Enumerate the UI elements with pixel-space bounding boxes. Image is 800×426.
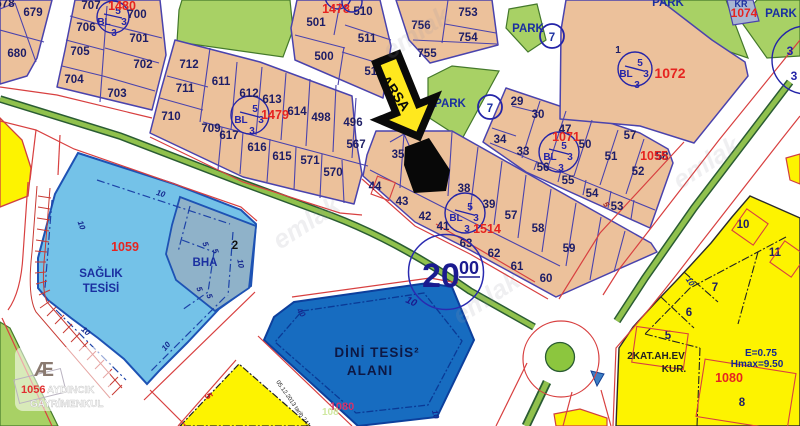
- svg-text:702: 702: [133, 59, 152, 71]
- svg-text:5: 5: [467, 202, 473, 213]
- svg-text:496: 496: [343, 117, 362, 129]
- svg-text:35: 35: [392, 149, 405, 161]
- svg-text:3: 3: [558, 163, 564, 174]
- svg-text:ALANI: ALANI: [347, 363, 393, 378]
- svg-text:498: 498: [311, 112, 331, 124]
- svg-text:1071: 1071: [552, 130, 580, 144]
- svg-text:709: 709: [201, 123, 220, 135]
- svg-text:41: 41: [437, 221, 450, 233]
- svg-text:60: 60: [540, 273, 553, 285]
- svg-text:1080: 1080: [715, 371, 743, 385]
- svg-text:704: 704: [64, 74, 84, 86]
- svg-text:54: 54: [586, 188, 599, 200]
- svg-text:BL: BL: [449, 213, 462, 224]
- svg-text:56: 56: [537, 162, 550, 174]
- svg-text:DİNİ TESİS²: DİNİ TESİS²: [334, 345, 419, 360]
- svg-text:43: 43: [396, 196, 409, 208]
- svg-text:570: 570: [323, 167, 342, 179]
- svg-text:1480: 1480: [108, 0, 136, 13]
- svg-text:1479: 1479: [261, 108, 289, 122]
- svg-text:20: 20: [422, 257, 460, 295]
- svg-text:1055: 1055: [640, 149, 668, 163]
- svg-text:BL: BL: [97, 17, 110, 28]
- svg-text:679: 679: [23, 7, 42, 19]
- svg-text:38: 38: [458, 183, 471, 195]
- svg-text:501: 501: [306, 17, 326, 29]
- svg-text:50: 50: [579, 139, 592, 151]
- svg-text:Hmax=9.50: Hmax=9.50: [731, 359, 784, 370]
- svg-text:3: 3: [567, 152, 573, 163]
- svg-text:3: 3: [464, 224, 470, 235]
- svg-text:617: 617: [219, 130, 238, 142]
- svg-text:510: 510: [353, 6, 372, 18]
- svg-text:3: 3: [791, 69, 798, 83]
- svg-text:39: 39: [483, 199, 496, 211]
- svg-text:AYDINCIK: AYDINCIK: [47, 385, 95, 396]
- svg-text:GAYRİMENKUL: GAYRİMENKUL: [30, 397, 104, 410]
- svg-text:703: 703: [107, 88, 126, 100]
- svg-text:55: 55: [562, 175, 575, 187]
- svg-text:3: 3: [787, 44, 794, 58]
- svg-text:33: 33: [517, 146, 530, 158]
- svg-text:29: 29: [511, 96, 524, 108]
- svg-text:705: 705: [70, 46, 90, 58]
- svg-text:1072: 1072: [654, 65, 685, 81]
- svg-text:BL: BL: [234, 115, 247, 126]
- svg-text:612: 612: [239, 88, 258, 100]
- svg-text:711: 711: [176, 83, 195, 95]
- svg-text:30: 30: [532, 109, 545, 121]
- svg-text:613: 613: [262, 94, 281, 106]
- svg-text:1: 1: [615, 45, 621, 56]
- svg-text:SAĞLIK: SAĞLIK: [79, 267, 123, 280]
- svg-text:TESİSİ: TESİSİ: [83, 282, 119, 295]
- svg-text:58: 58: [532, 223, 545, 235]
- svg-text:567: 567: [346, 139, 365, 151]
- svg-text:PARK: PARK: [434, 98, 466, 110]
- svg-text:500: 500: [314, 51, 333, 63]
- svg-text:57: 57: [505, 210, 518, 222]
- svg-text:1056: 1056: [21, 384, 45, 396]
- svg-text:57: 57: [624, 130, 637, 142]
- svg-text:3: 3: [249, 126, 255, 137]
- svg-text:108: 108: [322, 407, 339, 418]
- svg-text:754: 754: [458, 32, 478, 44]
- svg-text:3: 3: [111, 28, 117, 39]
- svg-text:3: 3: [121, 17, 127, 28]
- svg-text:59: 59: [563, 243, 576, 255]
- svg-text:5: 5: [252, 104, 258, 115]
- svg-text:7: 7: [712, 282, 718, 294]
- svg-text:53: 53: [611, 201, 624, 213]
- svg-text:3: 3: [634, 80, 640, 91]
- svg-text:8: 8: [739, 397, 746, 409]
- svg-text:52: 52: [632, 166, 645, 178]
- svg-text:BHA: BHA: [193, 257, 218, 269]
- svg-text:707: 707: [81, 0, 100, 12]
- svg-text:680: 680: [7, 48, 26, 60]
- svg-text:Æ: Æ: [34, 359, 54, 381]
- svg-text:571: 571: [300, 155, 320, 167]
- svg-text:710: 710: [161, 111, 180, 123]
- svg-text:1514: 1514: [473, 222, 501, 236]
- svg-text:6: 6: [686, 307, 692, 319]
- svg-text:1059: 1059: [111, 240, 139, 254]
- svg-text:PARK: PARK: [765, 8, 797, 20]
- svg-text:755: 755: [417, 48, 437, 60]
- svg-text:701: 701: [129, 33, 149, 45]
- svg-text:KUR.: KUR.: [662, 364, 687, 375]
- svg-text:678: 678: [0, 0, 15, 10]
- svg-text:7: 7: [487, 103, 493, 115]
- svg-text:611: 611: [212, 76, 231, 88]
- svg-text:511: 511: [358, 33, 377, 45]
- svg-text:PARK: PARK: [652, 0, 684, 9]
- svg-text:5: 5: [637, 58, 643, 69]
- svg-text:BL: BL: [619, 69, 632, 80]
- svg-text:712: 712: [179, 59, 198, 71]
- svg-text:614: 614: [287, 106, 307, 118]
- svg-text:753: 753: [458, 7, 477, 19]
- svg-text:615: 615: [272, 151, 292, 163]
- svg-text:62: 62: [488, 248, 501, 260]
- svg-text:616: 616: [247, 142, 266, 154]
- svg-text:E=0.75: E=0.75: [745, 348, 777, 359]
- svg-text:7: 7: [549, 32, 555, 44]
- svg-text:34: 34: [494, 134, 507, 146]
- svg-text:00: 00: [459, 258, 479, 278]
- svg-text:2KAT.AH.EV: 2KAT.AH.EV: [627, 351, 685, 362]
- svg-text:42: 42: [419, 211, 432, 223]
- svg-text:3: 3: [643, 69, 649, 80]
- svg-text:706: 706: [76, 22, 95, 34]
- svg-text:2: 2: [232, 240, 238, 252]
- svg-text:51: 51: [605, 151, 618, 163]
- svg-text:KR: KR: [735, 0, 748, 9]
